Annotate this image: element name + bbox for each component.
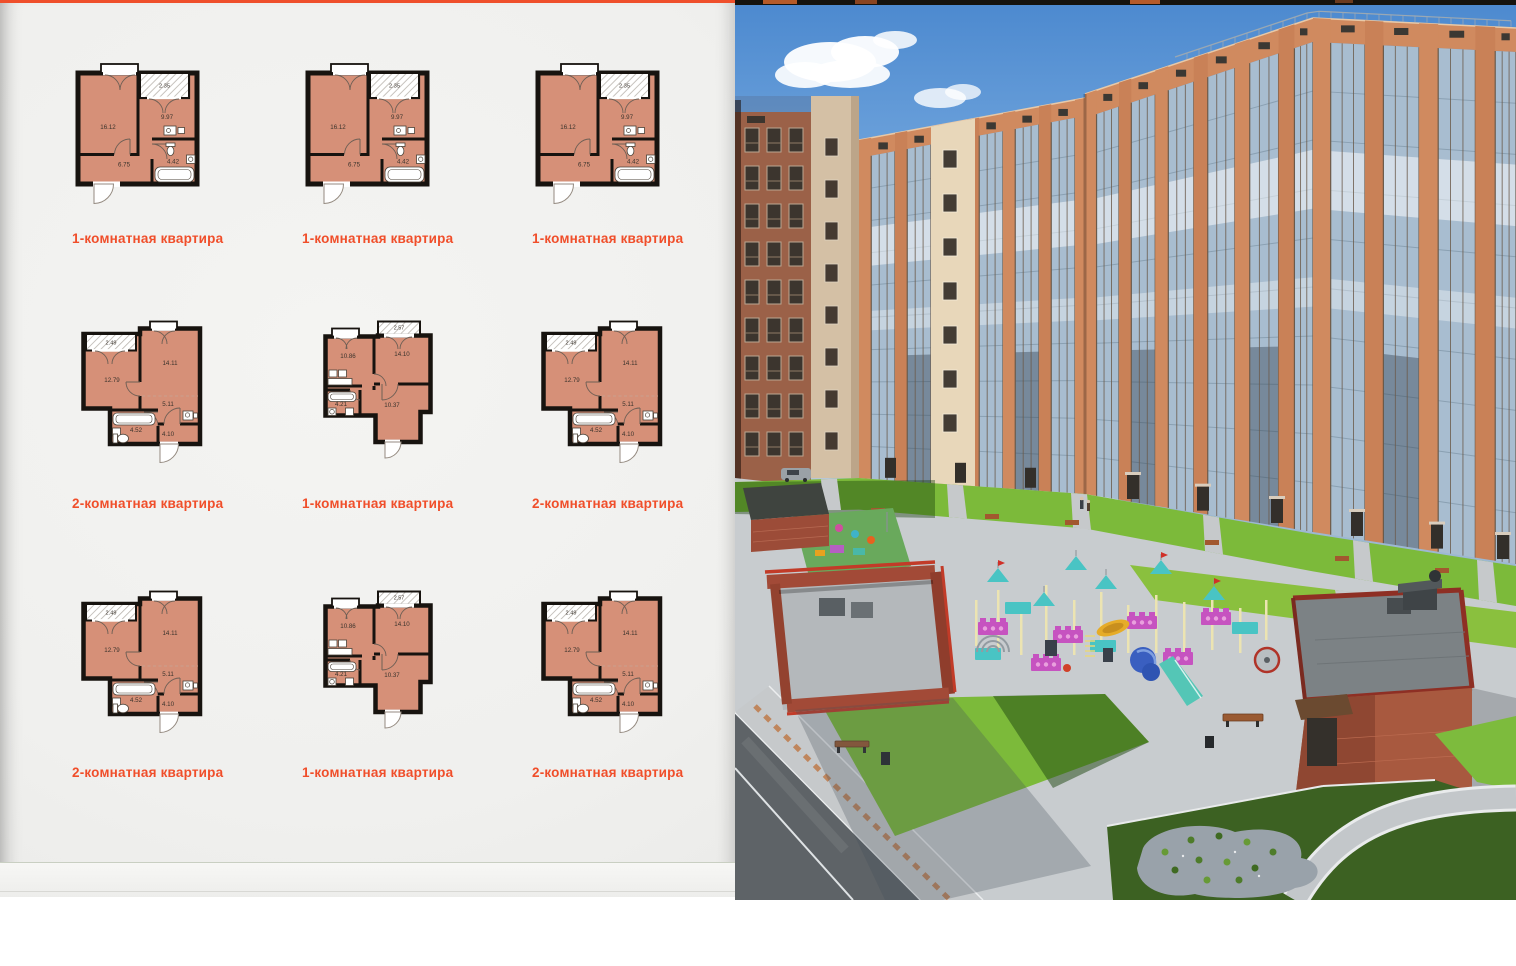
- svg-text:9.97: 9.97: [621, 114, 634, 121]
- svg-text:4.52: 4.52: [590, 697, 603, 704]
- carousel: [1255, 648, 1279, 672]
- page-top-accent-strip: [0, 0, 735, 3]
- floor-plan: 16.129.976.754.422.35: [74, 62, 201, 213]
- svg-text:16.12: 16.12: [560, 124, 576, 131]
- floor-plan: 2.4912.7914.115.114.524.10: [80, 320, 204, 479]
- plan-label: 2-комнатная квартира: [72, 765, 223, 780]
- floor-plan: 2.4912.7914.115.114.524.10: [540, 590, 664, 749]
- svg-text:10.37: 10.37: [384, 672, 400, 679]
- svg-text:9.97: 9.97: [161, 114, 174, 121]
- svg-text:5.11: 5.11: [622, 671, 634, 678]
- floor-plan: 16.129.976.754.422.35: [304, 62, 431, 213]
- plan-cell: 16.129.976.754.422.351-комнатная квартир…: [302, 62, 537, 253]
- building-main-facade: [1085, 18, 1516, 564]
- plan-label: 1-комнатная квартира: [302, 496, 453, 511]
- svg-text:2.49: 2.49: [106, 611, 117, 617]
- svg-text:4.10: 4.10: [162, 701, 175, 708]
- svg-text:2.35: 2.35: [619, 84, 630, 90]
- plan-cell: 16.129.976.754.422.351-комнатная квартир…: [532, 62, 767, 253]
- svg-text:14.11: 14.11: [622, 630, 638, 637]
- svg-text:4.21: 4.21: [335, 671, 348, 678]
- courtyard-photo-svg: [735, 0, 1516, 900]
- svg-text:14.11: 14.11: [162, 360, 178, 367]
- svg-text:2.49: 2.49: [566, 611, 577, 617]
- svg-text:2.35: 2.35: [159, 84, 170, 90]
- brick-enclosure-small: [743, 483, 829, 552]
- floor-plan: 2.4912.7914.115.114.524.10: [80, 590, 204, 749]
- svg-text:2.57: 2.57: [394, 596, 405, 602]
- svg-text:4.10: 4.10: [162, 431, 175, 438]
- floor-plan: 2.4912.7914.115.114.524.10: [540, 320, 664, 479]
- floor-plans-page: 16.129.976.754.422.351-комнатная квартир…: [0, 0, 735, 897]
- svg-text:2.35: 2.35: [389, 84, 400, 90]
- svg-text:14.10: 14.10: [394, 351, 410, 358]
- svg-text:12.79: 12.79: [104, 377, 120, 384]
- svg-text:4.52: 4.52: [590, 427, 603, 434]
- plan-cell: 2.4912.7914.115.114.524.102-комнатная кв…: [72, 320, 307, 518]
- car: [781, 468, 811, 482]
- svg-text:4.10: 4.10: [622, 701, 635, 708]
- plan-label: 1-комнатная квартира: [532, 231, 683, 246]
- svg-text:16.12: 16.12: [100, 124, 116, 131]
- building-left-wing: [735, 96, 1085, 494]
- svg-text:4.52: 4.52: [130, 427, 143, 434]
- plan-label: 1-комнатная квартира: [302, 231, 453, 246]
- floor-plan: 10.8614.104.2110.372.57: [322, 320, 434, 469]
- courtyard-photo: [735, 0, 1516, 900]
- photo-top-strip: [735, 0, 1516, 5]
- plan-label: 1-комнатная квартира: [72, 231, 223, 246]
- svg-text:6.75: 6.75: [348, 162, 361, 169]
- svg-text:5.11: 5.11: [162, 401, 174, 408]
- plan-cell: 10.8614.104.2110.372.571-комнатная кварт…: [302, 590, 537, 787]
- plan-label: 2-комнатная квартира: [532, 496, 683, 511]
- svg-text:6.75: 6.75: [118, 162, 131, 169]
- page-bottom-edge-2: [0, 891, 735, 892]
- svg-text:5.11: 5.11: [162, 671, 174, 678]
- plan-cell: 10.8614.104.2110.372.571-комнатная кварт…: [302, 320, 537, 518]
- plan-label: 1-комнатная квартира: [302, 765, 453, 780]
- plan-label: 2-комнатная квартира: [72, 496, 223, 511]
- svg-text:4.42: 4.42: [627, 159, 640, 166]
- svg-text:2.57: 2.57: [394, 326, 405, 332]
- svg-text:4.21: 4.21: [335, 401, 348, 408]
- svg-text:10.86: 10.86: [340, 353, 356, 360]
- svg-text:6.75: 6.75: [578, 162, 591, 169]
- svg-text:4.42: 4.42: [167, 159, 180, 166]
- floor-plan: 10.8614.104.2110.372.57: [322, 590, 434, 739]
- svg-text:2.49: 2.49: [566, 341, 577, 347]
- svg-text:12.79: 12.79: [564, 377, 580, 384]
- plan-cell: 2.4912.7914.115.114.524.102-комнатная кв…: [532, 320, 767, 518]
- svg-text:14.10: 14.10: [394, 621, 410, 628]
- svg-text:10.86: 10.86: [340, 623, 356, 630]
- svg-text:4.52: 4.52: [130, 697, 143, 704]
- svg-text:14.11: 14.11: [622, 360, 638, 367]
- svg-text:10.37: 10.37: [384, 402, 400, 409]
- svg-text:16.12: 16.12: [330, 124, 346, 131]
- svg-text:12.79: 12.79: [564, 647, 580, 654]
- svg-text:14.11: 14.11: [162, 630, 178, 637]
- svg-text:12.79: 12.79: [104, 647, 120, 654]
- plan-cell: 2.4912.7914.115.114.524.102-комнатная кв…: [532, 590, 767, 787]
- svg-text:4.10: 4.10: [622, 431, 635, 438]
- plan-cell: 2.4912.7914.115.114.524.102-комнатная кв…: [72, 590, 307, 787]
- plan-cell: 16.129.976.754.422.351-комнатная квартир…: [72, 62, 307, 253]
- svg-text:4.42: 4.42: [397, 159, 410, 166]
- svg-text:5.11: 5.11: [622, 401, 634, 408]
- svg-text:2.49: 2.49: [106, 341, 117, 347]
- plan-label: 2-комнатная квартира: [532, 765, 683, 780]
- svg-text:9.97: 9.97: [391, 114, 404, 121]
- brochure-spread: 16.129.976.754.422.351-комнатная квартир…: [0, 0, 1516, 966]
- floor-plan: 16.129.976.754.422.35: [534, 62, 661, 213]
